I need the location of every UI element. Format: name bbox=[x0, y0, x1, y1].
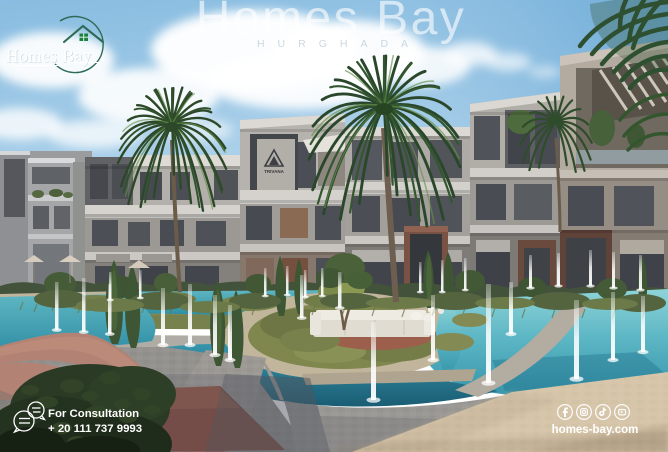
svg-text:TRIVANA: TRIVANA bbox=[264, 169, 284, 174]
svg-text:homes-bay.com: homes-bay.com bbox=[552, 424, 639, 436]
svg-text:For Consultation: For Consultation bbox=[48, 408, 139, 420]
svg-text:HURGHADA: HURGHADA bbox=[257, 38, 421, 50]
svg-text:+ 20 111 737 9993: + 20 111 737 9993 bbox=[48, 423, 142, 435]
